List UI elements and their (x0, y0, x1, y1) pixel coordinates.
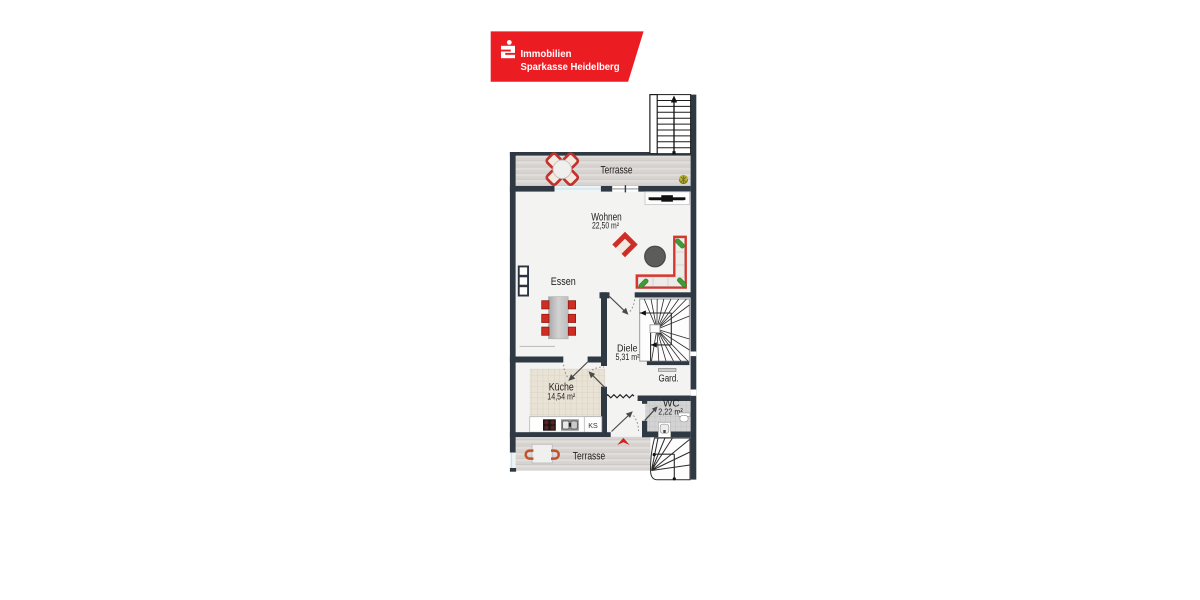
svg-text:22,50 m²: 22,50 m² (592, 221, 619, 231)
svg-text:Sparkasse Heidelberg: Sparkasse Heidelberg (521, 62, 620, 73)
svg-text:Terrasse: Terrasse (601, 165, 633, 177)
svg-text:Essen: Essen (551, 276, 576, 288)
svg-text:Gard.: Gard. (659, 373, 679, 385)
svg-text:Terrasse: Terrasse (573, 451, 606, 463)
svg-text:14,54 m²: 14,54 m² (547, 392, 575, 402)
svg-text:Immobilien: Immobilien (521, 49, 572, 60)
svg-text:5,31 m²: 5,31 m² (616, 352, 640, 362)
svg-text:KS: KS (588, 421, 598, 430)
